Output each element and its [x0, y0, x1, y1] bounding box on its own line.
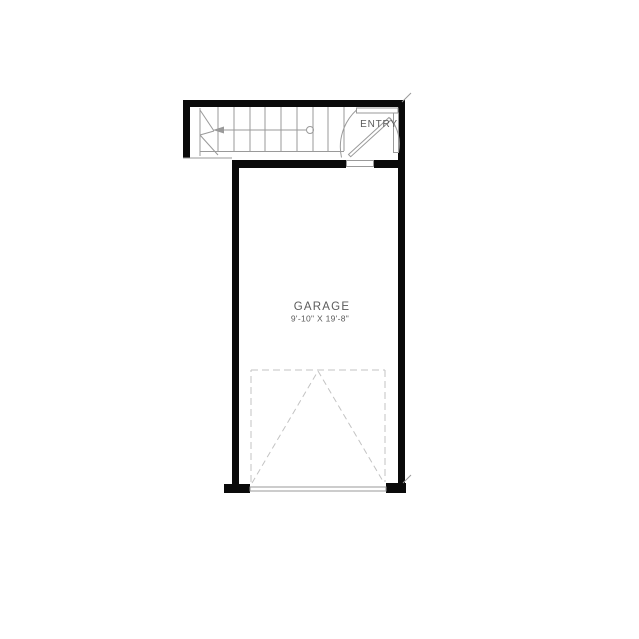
- wall-garage-left: [232, 160, 239, 485]
- entry-cased-opening-top: [357, 108, 399, 113]
- garage-door-post-right: [386, 483, 406, 493]
- stair-edge-lines: [183, 152, 344, 159]
- garage-door-overhead-dashed: [251, 370, 385, 483]
- wall-garage-top-right: [374, 160, 399, 168]
- garage-dimensions-label: 9'-10" X 19'-8": [291, 314, 349, 324]
- entry-area: ENTRY: [340, 108, 399, 167]
- wall-garage-top-left: [232, 160, 346, 168]
- wall-right: [398, 100, 405, 493]
- garage-door-track-dashed: [251, 370, 385, 482]
- garage-door-swing-dashed: [252, 371, 384, 483]
- entry-label: ENTRY: [360, 119, 398, 130]
- stair-treads: [218, 107, 344, 151]
- floor-plan-drawing: ENTRY GARAGE 9'-10" X 19'-8": [0, 0, 639, 639]
- garage-door-panel: [250, 487, 386, 491]
- wall-stair-left: [183, 100, 190, 158]
- garage-label: GARAGE: [294, 301, 350, 313]
- garage-area: GARAGE 9'-10" X 19'-8": [250, 301, 386, 491]
- stair-winder-treads: [200, 108, 218, 156]
- walls: [183, 100, 406, 493]
- stair-arrow-origin-circle: [307, 127, 314, 134]
- floor-plan-canvas: ENTRY GARAGE 9'-10" X 19'-8": [0, 0, 639, 639]
- staircase: [183, 107, 344, 158]
- stair-direction-arrow: [213, 127, 314, 134]
- entry-door-threshold: [347, 161, 374, 167]
- garage-door-post-left: [224, 484, 250, 493]
- wall-top: [183, 100, 405, 107]
